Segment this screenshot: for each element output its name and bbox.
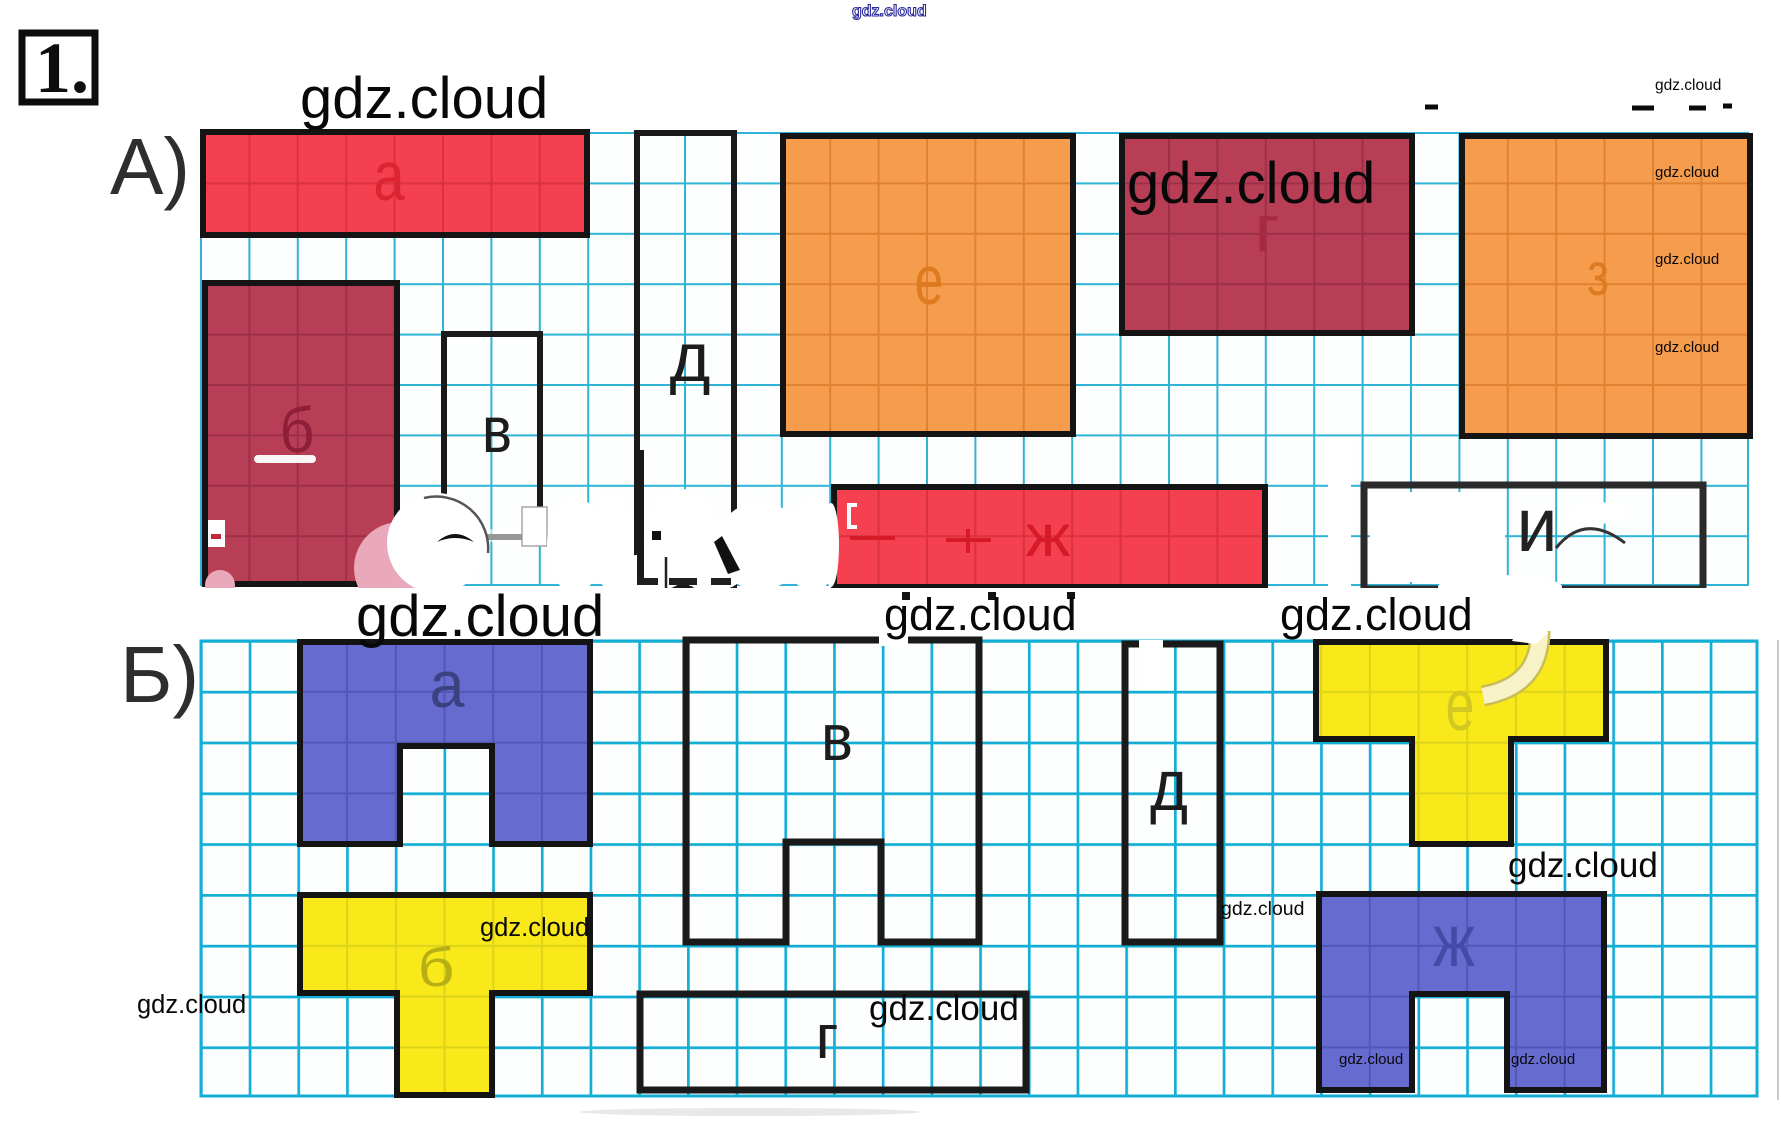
svg-text:д: д xyxy=(1150,746,1188,826)
svg-text:б: б xyxy=(418,936,455,998)
svg-text:в: в xyxy=(482,393,512,466)
svg-text:е: е xyxy=(915,241,944,319)
svg-text:а: а xyxy=(430,647,465,721)
svg-text:г: г xyxy=(816,1003,839,1072)
svg-text:ж: ж xyxy=(1433,899,1475,982)
svg-text:gdz.cloud: gdz.cloud xyxy=(884,589,1077,640)
svg-text:е: е xyxy=(1446,666,1475,746)
svg-text:д: д xyxy=(670,318,711,396)
svg-text:gdz.cloud: gdz.cloud xyxy=(1655,251,1719,268)
svg-text:gdz.cloud: gdz.cloud xyxy=(852,3,927,20)
svg-text:1.: 1. xyxy=(35,28,89,108)
svg-text:и: и xyxy=(1517,483,1558,568)
svg-text:gdz.cloud: gdz.cloud xyxy=(480,914,589,942)
svg-text:gdz.cloud: gdz.cloud xyxy=(1508,846,1658,885)
svg-text:gdz.cloud: gdz.cloud xyxy=(1280,589,1473,640)
svg-text:gdz.cloud: gdz.cloud xyxy=(1655,339,1719,356)
svg-text:gdz.cloud: gdz.cloud xyxy=(1511,1051,1575,1068)
svg-text:gdz.cloud: gdz.cloud xyxy=(869,989,1019,1028)
svg-text:в: в xyxy=(821,700,853,774)
svg-text:gdz.cloud: gdz.cloud xyxy=(1221,898,1304,920)
svg-text:gdz.cloud: gdz.cloud xyxy=(356,584,604,649)
svg-text:gdz.cloud: gdz.cloud xyxy=(1655,164,1719,181)
svg-text:ж: ж xyxy=(1026,503,1072,569)
svg-text:gdz.cloud: gdz.cloud xyxy=(1339,1051,1403,1068)
svg-text:gdz.cloud: gdz.cloud xyxy=(1127,151,1375,216)
svg-text:Б): Б) xyxy=(120,630,199,719)
svg-text:А): А) xyxy=(110,122,190,211)
svg-text:gdz.cloud: gdz.cloud xyxy=(300,66,548,131)
svg-text:а: а xyxy=(374,137,405,215)
svg-text:gdz.cloud: gdz.cloud xyxy=(1655,77,1721,94)
svg-text:з: з xyxy=(1587,240,1609,308)
svg-text:gdz.cloud: gdz.cloud xyxy=(137,991,246,1019)
